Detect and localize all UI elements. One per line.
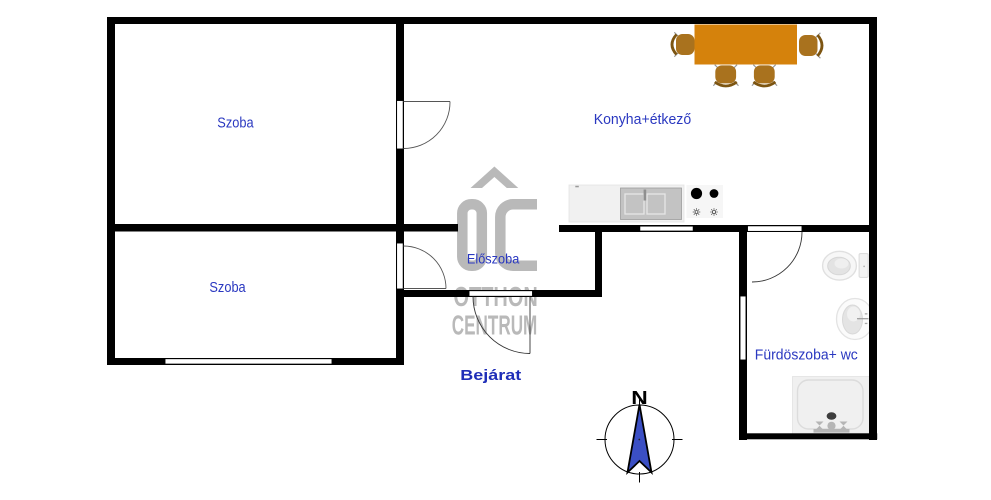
- svg-text:Szoba: Szoba: [209, 279, 246, 296]
- svg-text:Szoba: Szoba: [217, 114, 254, 131]
- svg-text:CENTRUM: CENTRUM: [452, 309, 538, 340]
- svg-text:Előszoba: Előszoba: [467, 251, 520, 267]
- svg-text:Konyha+étkező: Konyha+étkező: [594, 111, 692, 128]
- svg-text:Bejárat: Bejárat: [460, 368, 521, 384]
- svg-text:N: N: [631, 387, 648, 408]
- svg-text:Fürdöszoba+ wc: Fürdöszoba+ wc: [755, 347, 858, 364]
